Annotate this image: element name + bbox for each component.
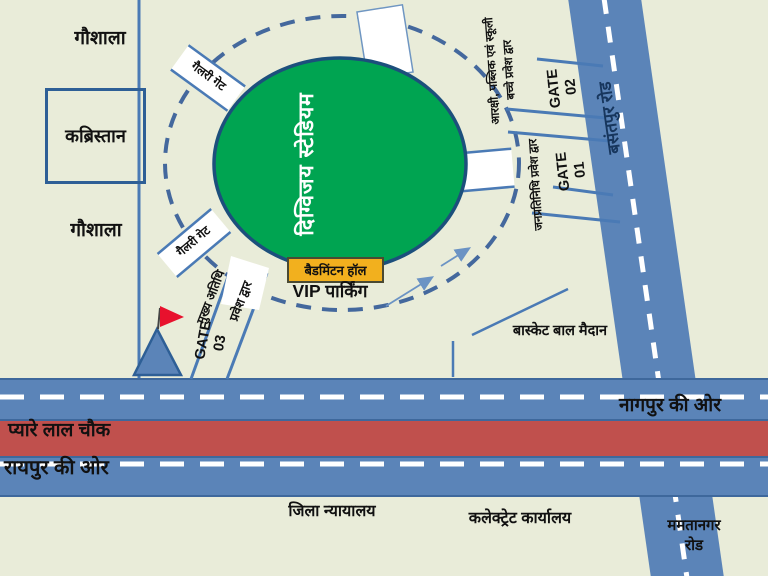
gate03-entry-band (221, 256, 269, 310)
flag-marker-triangle (134, 329, 181, 375)
label-kabristan: कब्रिस्तान (65, 126, 126, 147)
flag-pole (158, 308, 160, 329)
stadium-route-map: गौशाला कब्रिस्तान गौशाला दिग्विजय स्टेडि… (0, 0, 768, 576)
direction-arrow (441, 249, 468, 266)
flag-marker (134, 306, 184, 375)
basketball-ground-line (472, 289, 568, 335)
map-shapes-layer (0, 0, 768, 576)
main-road (0, 378, 768, 497)
kabristan-area: कब्रिस्तान (45, 88, 146, 184)
badminton-hall: बैडमिंटन हॉल (287, 257, 384, 283)
stadium-ellipse (214, 58, 466, 270)
main-road-median (0, 420, 768, 457)
flag-pennant-icon (160, 306, 184, 327)
gallery-gate-lower-band (158, 209, 231, 277)
